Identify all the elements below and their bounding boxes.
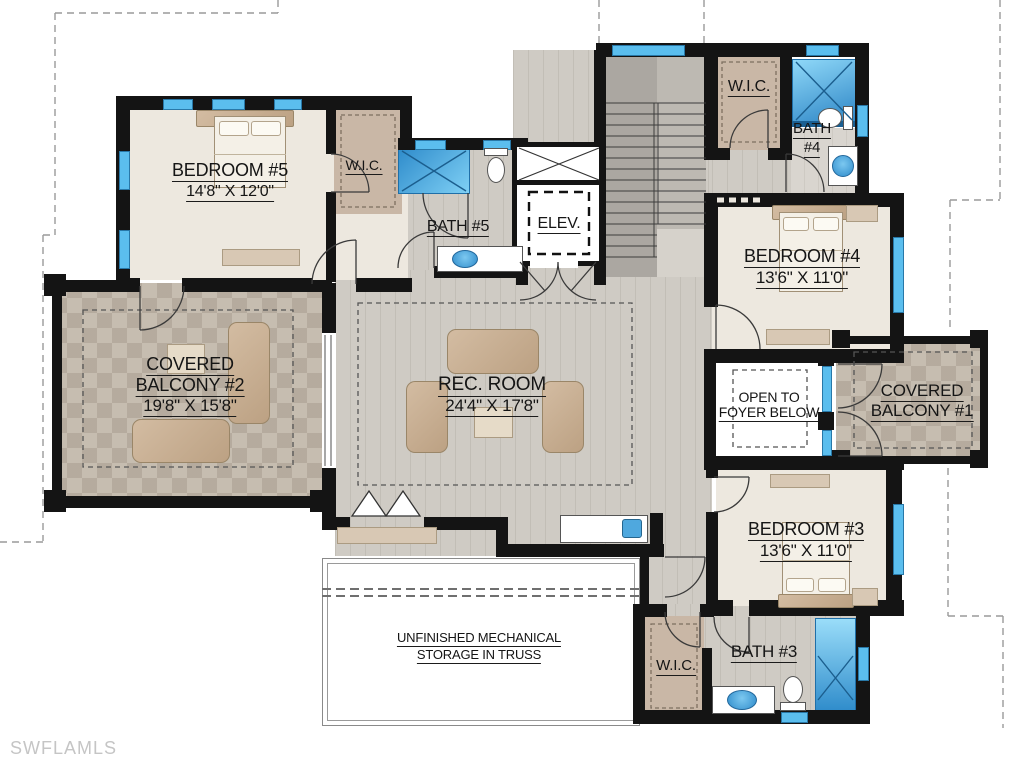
bath4-sink <box>832 155 854 177</box>
bedroom4-dresser <box>766 329 830 345</box>
balcony2-dims: 19'8" X 15'8" <box>143 397 236 415</box>
pillow <box>219 121 249 136</box>
bedroom3-label: BEDROOM #3 <box>748 520 864 539</box>
elevator-door-opening <box>530 260 578 268</box>
bath5-toilet <box>487 157 505 183</box>
wall <box>326 108 336 154</box>
window <box>893 237 904 313</box>
pillow <box>813 217 839 231</box>
balcony-wall <box>980 336 988 464</box>
bedroom5-dresser <box>222 249 300 266</box>
wall <box>640 557 649 607</box>
balcony-pier <box>832 330 850 348</box>
wall <box>496 544 664 557</box>
pillow <box>818 578 846 592</box>
wall <box>326 192 336 282</box>
bath5-toilet-tank <box>484 148 508 156</box>
wall <box>818 349 834 366</box>
bath4-label: BATH <box>793 121 831 137</box>
wet-bar-sink <box>622 519 642 538</box>
window <box>163 99 193 110</box>
bedroom4-label: BEDROOM #4 <box>744 247 860 266</box>
balcony-wall <box>52 280 62 508</box>
window <box>119 151 130 190</box>
wall <box>706 512 718 604</box>
bath5-label: BATH #5 <box>427 219 489 236</box>
wic5-label: W.I.C. <box>346 158 383 173</box>
wall <box>704 349 904 363</box>
bedroom3-table <box>852 588 878 606</box>
bedroom3-dims: 13'6" X 11'0" <box>760 542 852 560</box>
bath4-toilet-tank <box>843 106 853 130</box>
wall <box>633 604 645 724</box>
storage-label-1: UNFINISHED MECHANICAL <box>397 631 561 645</box>
bedroom5-label: BEDROOM #5 <box>172 161 288 180</box>
pillow <box>251 121 281 136</box>
pillow <box>786 578 814 592</box>
foyer-label-2: FOYER BELOW <box>719 405 819 420</box>
bath5-shower <box>398 148 470 194</box>
wall <box>704 349 716 470</box>
bath4-number: #4 <box>804 140 820 156</box>
wall <box>356 278 412 292</box>
wic4-floor <box>716 55 782 150</box>
window <box>822 366 832 412</box>
window <box>119 230 130 269</box>
window <box>212 99 245 110</box>
wall <box>650 513 663 557</box>
bedroom3-shelf <box>770 474 830 488</box>
balcony-pier <box>310 490 332 512</box>
balcony-pier <box>832 450 850 468</box>
wall <box>768 148 792 160</box>
bedroom5-dims: 14'8" X 12'0" <box>186 184 274 201</box>
balcony2-slider-slot <box>322 333 336 468</box>
bath3-toilet <box>783 676 803 703</box>
bed-fold-line <box>214 154 286 155</box>
storage-label-2: STORAGE IN TRUSS <box>417 648 541 662</box>
window <box>858 647 869 681</box>
window <box>781 712 808 723</box>
wall <box>704 148 730 160</box>
watermark: SWFLAMLS <box>10 738 117 759</box>
bath3-shower <box>815 618 856 712</box>
window <box>415 140 446 150</box>
bath3-label: BATH #3 <box>731 643 797 661</box>
wall <box>116 96 412 110</box>
pillow <box>783 217 809 231</box>
balcony1-label-1: COVERED <box>881 382 964 400</box>
balcony1-label-2: BALCONY #1 <box>871 402 974 420</box>
bath3-sink <box>727 690 757 710</box>
rec-room-dims: 24'4" X 17'8" <box>445 397 538 415</box>
floor-plan: BEDROOM #5 14'8" X 12'0" W.I.C. BATH #5 … <box>0 0 1014 768</box>
rec-room-sofa-right <box>542 381 584 453</box>
window <box>893 504 904 575</box>
balcony2-label-2: BALCONY #2 <box>136 376 245 395</box>
elevator-label: ELEV. <box>538 216 581 233</box>
bedroom4-shelf <box>846 205 878 222</box>
window <box>822 430 832 456</box>
rec-room-label: REC. ROOM <box>438 375 546 395</box>
wic3-label: W.I.C. <box>656 658 696 674</box>
stairs-lower-flight <box>657 57 706 229</box>
window <box>857 105 868 137</box>
balcony-wall <box>52 496 332 508</box>
foyer-label-1: OPEN TO <box>738 390 799 405</box>
balcony2-label-1: COVERED <box>146 355 234 374</box>
balcony-wall <box>834 456 988 464</box>
bath3-toilet-tank <box>780 702 806 711</box>
window <box>274 99 302 110</box>
balcony-pier <box>970 450 988 468</box>
bedroom4-dims: 13'6" X 11'0" <box>756 269 848 287</box>
balcony-pier <box>44 490 66 512</box>
rec-room-sofa-top <box>447 329 539 374</box>
wall <box>818 412 834 430</box>
buffet-cabinet <box>337 527 437 544</box>
balcony-pier <box>970 330 988 348</box>
wall <box>704 193 718 307</box>
wall <box>706 600 733 616</box>
wall <box>704 43 718 160</box>
balcony2-sofa-bottom <box>132 419 230 463</box>
wall <box>706 468 718 478</box>
bath5-sink <box>452 250 478 268</box>
window <box>806 45 839 56</box>
window <box>612 45 685 56</box>
wic4-label: W.I.C. <box>728 79 770 96</box>
wall <box>780 55 792 148</box>
balcony-wall <box>834 336 988 344</box>
wall <box>702 648 712 714</box>
stairs-upper-flight <box>606 57 657 277</box>
balcony-wall <box>182 280 332 292</box>
stairs-landing <box>657 229 706 277</box>
balcony-pier <box>44 274 66 296</box>
bath5-vanity <box>437 246 523 272</box>
bedroom3-footboard <box>778 594 854 608</box>
